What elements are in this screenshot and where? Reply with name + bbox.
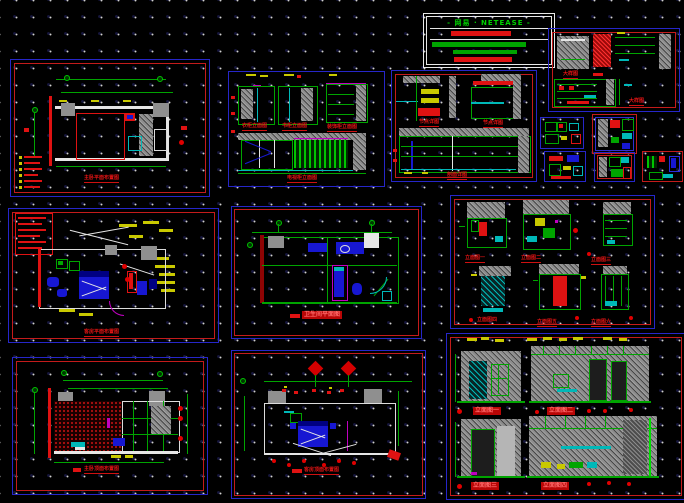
legend-text	[24, 162, 40, 164]
section-outline	[399, 136, 531, 173]
red-marker	[627, 482, 631, 486]
base-line	[238, 170, 353, 171]
window-line	[498, 364, 499, 394]
grid-line	[575, 346, 576, 354]
fixture	[107, 418, 110, 428]
grid-line	[565, 416, 566, 428]
sheet-elevations-top-middle: 衣柜立面图 书柜立面图 装饰柜立面图 电视柜立面图	[228, 71, 385, 187]
wall-hatch	[403, 76, 440, 83]
detail-line	[584, 95, 596, 98]
caption-arrow	[290, 314, 300, 318]
elevation-detail	[605, 301, 617, 306]
furniture-box	[364, 233, 379, 248]
detail-shape	[559, 124, 563, 128]
fixture	[127, 115, 133, 119]
detail-shape	[622, 133, 632, 139]
dim-tick	[533, 280, 538, 281]
detail-shape	[567, 155, 579, 162]
red-marker	[575, 316, 579, 320]
detail-shape	[573, 166, 583, 176]
lamp-symbol	[178, 436, 183, 441]
dim-marker	[64, 75, 70, 81]
grid-line	[607, 346, 608, 354]
sheet-caption: 主卧顶面布置图	[84, 467, 119, 474]
elevation-caption: 书柜立面图	[282, 124, 307, 131]
ceiling-band-hatch	[399, 128, 529, 136]
label-tag	[159, 229, 173, 232]
sink	[340, 245, 350, 253]
divider	[430, 39, 548, 40]
door-dark	[589, 359, 607, 401]
detail-line	[557, 98, 597, 99]
legend-text	[18, 217, 46, 219]
dim-line	[34, 392, 35, 454]
red-marker	[587, 409, 591, 413]
detail-line	[615, 37, 655, 38]
detail-shape	[561, 136, 567, 140]
elevation-detail	[555, 220, 558, 223]
furniture-box	[61, 103, 75, 116]
detail-line	[557, 91, 597, 92]
sheet-details-top-right: 大样图 大样图	[548, 28, 680, 112]
dim-marker	[240, 378, 246, 384]
section-line	[401, 146, 521, 147]
label-tag	[329, 74, 337, 76]
lamp-symbol	[178, 416, 183, 421]
sheet-caption: 客房顶面布置图	[304, 468, 339, 475]
wall-hatch	[606, 79, 614, 105]
grid-line	[605, 416, 606, 428]
lamp-symbol	[302, 459, 306, 463]
legend-text	[18, 241, 46, 243]
label-tag	[422, 172, 428, 174]
detail-block	[473, 81, 513, 85]
red-hatch-block	[593, 34, 611, 67]
red-marker	[393, 159, 397, 162]
label-tag	[404, 172, 412, 174]
label-tag	[329, 387, 332, 389]
furniture-box	[364, 389, 382, 404]
legend-swatch	[19, 174, 22, 177]
dim-marker	[369, 220, 375, 226]
detail-shape	[569, 123, 579, 131]
detail-shape	[549, 164, 561, 176]
fixture	[541, 462, 551, 468]
detail-line	[615, 45, 655, 46]
bench	[129, 273, 133, 289]
label-tag	[284, 386, 287, 388]
fixture	[75, 447, 85, 450]
dim-marker	[61, 370, 67, 376]
detail-shape	[671, 158, 676, 168]
grid-line	[133, 401, 134, 451]
fixture	[69, 261, 80, 271]
detail-block	[418, 108, 440, 116]
lamp-symbol	[327, 391, 331, 394]
armchair	[47, 277, 59, 287]
label-tag	[59, 100, 67, 102]
red-marker	[603, 409, 607, 413]
wall-line	[49, 96, 52, 166]
elevation-detail	[621, 276, 622, 306]
dim-line	[371, 224, 372, 232]
elevation-detail	[495, 236, 503, 242]
legend-text	[18, 229, 46, 231]
dim-line	[244, 396, 245, 451]
grid-line	[122, 434, 178, 435]
lamp-symbol	[282, 389, 286, 392]
detail-shape	[621, 157, 629, 163]
dim-line	[455, 354, 456, 402]
detail-line	[471, 102, 504, 104]
wall-line	[327, 237, 328, 302]
detail-shape	[545, 122, 557, 132]
red-marker	[535, 410, 539, 414]
sheet-ceiling-bottom-left: 主卧顶面布置图	[12, 357, 208, 495]
sheet-details-top-center: 节点详图 节点详图 剖面详图	[391, 70, 537, 182]
base-line	[527, 476, 659, 478]
elevation-caption: 立面图四	[541, 482, 569, 490]
detail-caption: 大样图	[629, 99, 644, 106]
lamp-symbol	[272, 459, 276, 463]
elevation-detail	[471, 472, 477, 475]
label-tag	[527, 338, 537, 341]
legend-text	[24, 180, 42, 182]
detail-shape	[649, 172, 663, 180]
detail-shape	[571, 134, 581, 144]
detail-shape	[622, 119, 634, 131]
divider	[430, 28, 548, 29]
base-line	[529, 401, 651, 403]
detail-caption: 节点详图	[483, 121, 503, 128]
door-dark	[611, 361, 627, 401]
elevation-detail	[535, 218, 545, 226]
sheet-detail-e	[642, 151, 683, 182]
red-marker	[469, 318, 473, 322]
column-hatch	[623, 420, 647, 474]
label-tag	[543, 337, 552, 340]
elevation-detail	[471, 220, 479, 232]
elevation-detail	[543, 228, 555, 238]
elevation-caption: 立面图三	[471, 482, 499, 490]
caption-arrow	[73, 468, 81, 472]
detail-shape	[611, 137, 619, 143]
wall-line	[38, 249, 41, 307]
elevation-caption: 立面图二	[521, 256, 541, 263]
cabinet	[137, 281, 147, 295]
detail-shape	[609, 157, 621, 167]
legend-text	[24, 168, 42, 170]
red-marker	[629, 408, 633, 412]
label-tag	[111, 455, 121, 458]
detail-line	[624, 84, 632, 86]
wall-hatch	[481, 74, 516, 81]
elevation-detail	[553, 374, 569, 388]
elevation-hatch	[603, 202, 631, 214]
fixture	[569, 462, 583, 468]
base-line	[401, 169, 516, 170]
elevation-hatch	[479, 266, 511, 276]
elevation-caption: 立面图五	[537, 320, 557, 327]
dim-line	[34, 113, 35, 158]
window-line	[491, 378, 507, 379]
grid-line	[585, 416, 586, 428]
fixture	[113, 438, 125, 446]
furniture-box	[105, 245, 117, 255]
title-row-green	[453, 50, 517, 54]
shelf-line	[605, 220, 627, 221]
furniture-box	[153, 103, 169, 117]
lamp-symbol	[337, 459, 341, 463]
dim-line	[56, 79, 166, 80]
dim-marker	[276, 220, 282, 226]
elevation-hatch	[467, 202, 505, 218]
label-tag	[284, 74, 294, 76]
red-marker	[231, 130, 235, 133]
detail-shape	[623, 167, 631, 179]
legend-swatch	[19, 156, 22, 159]
legend-text	[24, 174, 38, 176]
dim-marker	[32, 107, 38, 113]
label-tag	[603, 337, 612, 340]
label-tag	[123, 100, 131, 102]
red-marker	[297, 75, 301, 78]
elevation-detail	[607, 240, 615, 244]
elevation-detail	[527, 236, 537, 242]
red-marker	[181, 126, 187, 130]
red-marker	[569, 86, 574, 90]
red-marker	[607, 481, 611, 485]
elevation-hatch	[603, 266, 627, 274]
dim-line	[63, 380, 163, 381]
detail-shape	[545, 134, 559, 144]
red-marker	[24, 128, 29, 132]
label-tag	[129, 235, 143, 238]
legend-swatch	[19, 162, 22, 165]
furniture-box	[141, 246, 157, 260]
label-tag	[260, 75, 268, 77]
armchair	[57, 289, 67, 297]
detail-line	[561, 39, 585, 41]
cabinet-hatch	[241, 89, 253, 119]
label-tag	[617, 32, 625, 34]
section-line	[452, 136, 453, 171]
detail-line	[557, 84, 597, 85]
cad-canvas[interactable]: 主卧平面布置图 衣柜立面图 书柜立面图 装饰柜立面图	[0, 0, 684, 503]
door-light	[497, 426, 515, 476]
grid-line	[147, 401, 148, 451]
red-marker	[125, 277, 130, 282]
label-tag	[481, 337, 489, 340]
label-tag	[143, 221, 159, 224]
label-tag	[471, 274, 477, 276]
lamp-symbol	[340, 389, 344, 392]
elevation-caption: 立面图二	[547, 407, 575, 415]
legend-text	[24, 156, 42, 158]
room-outline	[76, 113, 125, 160]
detail-line	[619, 59, 629, 61]
detail-shape	[551, 176, 571, 179]
dim-marker	[247, 242, 253, 248]
detail-shape	[549, 156, 563, 161]
label-tag	[467, 338, 477, 341]
wall-line	[48, 388, 51, 458]
sheet-detail-a	[540, 117, 584, 149]
sheet-caption: 客房平面布置图	[84, 330, 119, 337]
red-marker	[587, 252, 591, 256]
wall-hatch	[513, 74, 521, 119]
column-hatch	[353, 140, 366, 170]
dim-marker	[32, 387, 38, 393]
dim-line	[61, 92, 173, 93]
dim-line	[264, 381, 412, 382]
detail-caption: 节点详图	[419, 120, 439, 127]
red-marker	[122, 264, 127, 269]
fixture	[154, 129, 167, 151]
base-line	[238, 173, 366, 174]
red-marker	[559, 86, 564, 90]
window	[491, 364, 509, 396]
elevation-detail	[483, 308, 503, 312]
counter-line	[274, 140, 275, 168]
dim-line	[56, 166, 166, 167]
lamp-symbol	[287, 463, 291, 467]
counter-line	[294, 138, 348, 139]
red-marker	[629, 316, 633, 320]
cabinet-line	[326, 83, 366, 84]
grid-line	[545, 416, 546, 428]
bathtub	[334, 267, 344, 297]
ceiling-slab-hatch	[151, 406, 171, 434]
elevation-caption: 衣柜立面图	[242, 124, 267, 131]
detail-shape	[611, 169, 623, 177]
base-line	[457, 476, 525, 478]
detail-shape	[610, 120, 620, 128]
red-marker	[231, 112, 235, 115]
red-marker	[567, 101, 589, 104]
dim-line	[68, 388, 168, 389]
sheet-detail-c	[544, 151, 586, 182]
counter-line	[259, 140, 260, 168]
detail-line	[561, 59, 585, 60]
legend-text	[24, 186, 40, 188]
detail-shape	[622, 143, 630, 149]
cabinet-line	[257, 88, 258, 122]
shelf-line	[605, 236, 627, 237]
elevation-caption: 立面图一	[465, 256, 485, 263]
detail-shape	[599, 157, 607, 177]
detail-shape	[663, 174, 673, 178]
detail-line	[416, 76, 417, 121]
label-tag	[495, 339, 504, 342]
bathtub	[334, 267, 344, 271]
detail-line	[619, 79, 620, 105]
red-marker	[393, 149, 397, 152]
sheet-elevations-middle-right: 立面图一 立面图二 立面图三 立面图四 立面图五	[450, 195, 655, 329]
grid-line	[531, 354, 649, 355]
title-row-green	[432, 42, 526, 47]
elevation-hatch	[523, 200, 569, 214]
cabinet-hatch	[356, 85, 366, 121]
label-tag	[59, 309, 75, 312]
base-line	[457, 401, 525, 403]
grid-line	[623, 346, 624, 354]
detail-line	[396, 101, 418, 102]
toilet	[352, 283, 362, 295]
shelf-line	[561, 446, 611, 449]
fixture	[58, 261, 63, 265]
elevation-caption: 立面图一	[473, 407, 501, 415]
detail-block	[421, 98, 439, 103]
elevation-caption: 立面图四	[477, 318, 497, 325]
legend-text	[18, 235, 40, 237]
caption-arrow	[292, 469, 302, 473]
title-row-red	[454, 57, 512, 62]
red-marker	[457, 409, 462, 414]
title-row-red	[451, 31, 511, 36]
cabinet-line	[253, 85, 261, 86]
wall-line	[54, 451, 178, 454]
red-marker	[231, 96, 235, 99]
sheet-plan-top-left: 主卧平面布置图	[10, 59, 210, 197]
fixture	[587, 462, 597, 468]
lamp-symbol	[178, 406, 183, 411]
nightstand	[330, 423, 336, 429]
legend-swatch	[19, 180, 22, 183]
cabinet	[149, 279, 157, 289]
red-marker	[573, 228, 578, 233]
elevation-detail	[557, 389, 577, 392]
label-tag	[246, 74, 256, 76]
dim-marker	[157, 371, 163, 377]
dim-line	[187, 394, 188, 454]
dim-tick	[459, 226, 465, 227]
legend-swatch	[19, 168, 22, 171]
elevation-caption: 立面图六	[591, 320, 611, 327]
legend-text	[18, 223, 42, 225]
detail-block	[421, 89, 439, 94]
wall-hatch	[449, 76, 456, 118]
shelf-line	[328, 94, 354, 95]
elevation-body	[481, 276, 505, 306]
cabinet-line	[289, 88, 290, 122]
sheet-detail-b	[592, 114, 637, 154]
detail-shape	[659, 156, 665, 162]
detail-shape	[563, 166, 571, 170]
wall-line	[262, 265, 397, 266]
label-tag	[125, 455, 133, 458]
dim-line	[278, 224, 279, 232]
sheet-elevations-bottom-right: 立面图一 立面图二 立面图三	[446, 333, 684, 500]
label-tag	[573, 337, 583, 340]
furniture-box	[268, 236, 284, 248]
wall-hatch	[659, 34, 671, 69]
label-tag	[619, 338, 627, 341]
wall-hatch	[518, 136, 529, 173]
elevation-caption: 装饰柜立面图	[327, 125, 357, 132]
dim-line	[455, 422, 456, 477]
shelf-line	[328, 114, 354, 115]
detail-shape	[598, 119, 608, 147]
red-marker	[179, 140, 184, 145]
elevation-caption: 立面图三	[591, 258, 611, 265]
label-tag	[79, 313, 93, 316]
door-red	[553, 276, 567, 306]
base-line	[262, 302, 397, 303]
nightstand	[290, 423, 296, 429]
detail-caption: 大样图	[563, 72, 578, 79]
label-tag	[559, 338, 567, 341]
